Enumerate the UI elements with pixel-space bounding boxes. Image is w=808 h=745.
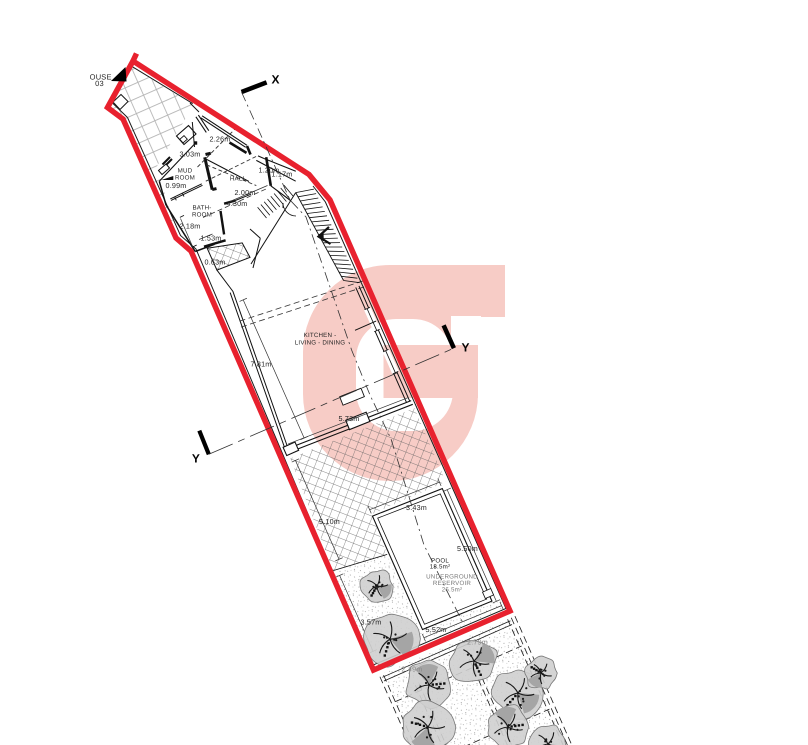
svg-text:2.18m: 2.18m	[180, 222, 201, 231]
svg-text:03: 03	[95, 79, 104, 88]
svg-text:ROOM: ROOM	[175, 175, 195, 182]
svg-text:ROOM: ROOM	[192, 212, 212, 219]
svg-text:2.79m: 2.79m	[467, 638, 488, 647]
svg-text:7.81m: 7.81m	[251, 360, 272, 369]
svg-text:5.50m: 5.50m	[457, 544, 478, 553]
svg-text:5.10m: 5.10m	[319, 517, 340, 526]
svg-text:2.00m: 2.00m	[235, 188, 256, 197]
svg-text:1.53m: 1.53m	[201, 234, 222, 243]
svg-text:3.43m: 3.43m	[406, 503, 427, 512]
svg-text:0.63m: 0.63m	[205, 258, 226, 267]
svg-text:2.26m: 2.26m	[210, 135, 231, 144]
svg-text:18.5m²: 18.5m²	[430, 564, 450, 571]
svg-text:26.5m²: 26.5m²	[442, 587, 462, 594]
svg-text:2.49m: 2.49m	[402, 665, 423, 674]
svg-text:Y: Y	[461, 341, 469, 355]
svg-text:4.30m: 4.30m	[227, 199, 248, 208]
svg-text:1.17m: 1.17m	[272, 170, 293, 179]
svg-text:LIVING - DINING: LIVING - DINING	[295, 340, 345, 347]
svg-text:HALL: HALL	[230, 176, 247, 183]
svg-text:5.73m: 5.73m	[339, 414, 360, 423]
svg-text:KITCHEN -: KITCHEN -	[304, 332, 337, 339]
svg-text:0.99m: 0.99m	[166, 181, 187, 190]
svg-text:BATH-: BATH-	[192, 205, 211, 212]
svg-text:5.52m: 5.52m	[426, 625, 447, 634]
svg-text:X: X	[271, 73, 279, 87]
svg-text:3.57m: 3.57m	[361, 618, 382, 627]
svg-text:3.03m: 3.03m	[180, 150, 201, 159]
svg-text:MUD: MUD	[178, 168, 193, 175]
svg-text:Y: Y	[192, 452, 200, 466]
